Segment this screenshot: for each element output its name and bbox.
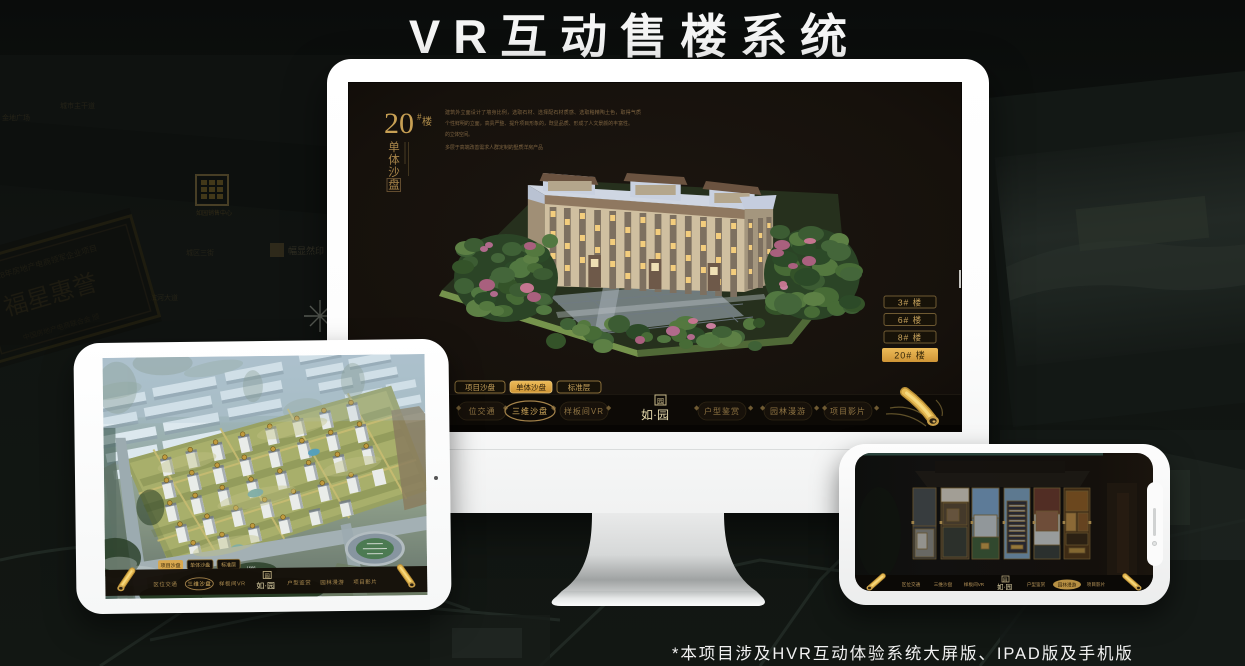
svg-text:园: 园 [657,398,664,406]
svg-text:如·园: 如·园 [256,580,275,590]
svg-text:城区三街: 城区三街 [186,248,214,257]
svg-text:6# 楼: 6# 楼 [898,315,922,325]
svg-text:单体沙盘: 单体沙盘 [190,562,210,569]
svg-text:沙: 沙 [388,166,400,179]
svg-text:标准层: 标准层 [221,561,236,568]
svg-text:单: 单 [388,141,400,154]
svg-text:20: 20 [384,107,414,140]
svg-text:项目沙盘: 项目沙盘 [161,562,181,569]
svg-text:20# 楼: 20# 楼 [894,350,926,361]
svg-text:三维沙盘: 三维沙盘 [512,406,548,416]
svg-text:单体沙盘: 单体沙盘 [516,382,546,392]
svg-text:如·园: 如·园 [997,582,1012,591]
svg-text:8# 楼: 8# 楼 [898,333,922,343]
svg-text:楼: 楼 [422,115,432,128]
svg-text:如园销售中心: 如园销售中心 [196,209,232,217]
svg-text:项目沙盘: 项目沙盘 [465,382,495,392]
svg-text:3# 楼: 3# 楼 [898,298,922,308]
svg-text:园林漫游: 园林漫游 [320,578,344,586]
svg-text:如·园: 如·园 [641,407,669,422]
svg-text:样板间VR: 样板间VR [564,406,604,416]
svg-text:盘: 盘 [388,178,400,192]
svg-text:样板间VR: 样板间VR [964,581,985,588]
svg-text:个性鲜明的立面，高贵严整、提升项目形象的，既显品质、形成了人: 个性鲜明的立面，高贵严整、提升项目形象的，既显品质、形成了人文景颜的丰富性。 [445,120,633,127]
svg-text:项目影片: 项目影片 [830,406,866,416]
svg-text:园: 园 [265,573,270,579]
svg-text:金地广场: 金地广场 [2,113,30,122]
svg-text:项目影片: 项目影片 [1087,581,1106,588]
svg-text:幅显然印: 幅显然印 [288,245,324,256]
svg-text:建筑外立面设计了墙身比例，选取石材、选择配石材质感、选取釉精: 建筑外立面设计了墙身比例，选取石材、选择配石材质感、选取釉精陶土色，取得气质 [445,109,641,116]
svg-text:体: 体 [388,153,400,167]
svg-text:项目影片: 项目影片 [353,578,377,586]
svg-text:园林漫游: 园林漫游 [770,406,806,416]
svg-text:户型鉴赏: 户型鉴赏 [704,406,740,416]
svg-text:园林漫游: 园林漫游 [1058,582,1077,589]
svg-text:区位交通: 区位交通 [902,581,921,588]
svg-text:户型鉴赏: 户型鉴赏 [1027,581,1046,588]
svg-text:标准层: 标准层 [568,382,591,392]
svg-text:多层于高端改善需求人群定制的墅质洋房产品: 多层于高端改善需求人群定制的墅质洋房产品 [445,144,543,151]
svg-text:的立体空间。: 的立体空间。 [445,131,473,138]
svg-text:三维沙盘: 三维沙盘 [934,581,953,588]
svg-text:三维沙盘: 三维沙盘 [187,580,211,588]
svg-text:位交通: 位交通 [469,406,496,416]
svg-text:城市主干道: 城市主干道 [60,101,95,110]
